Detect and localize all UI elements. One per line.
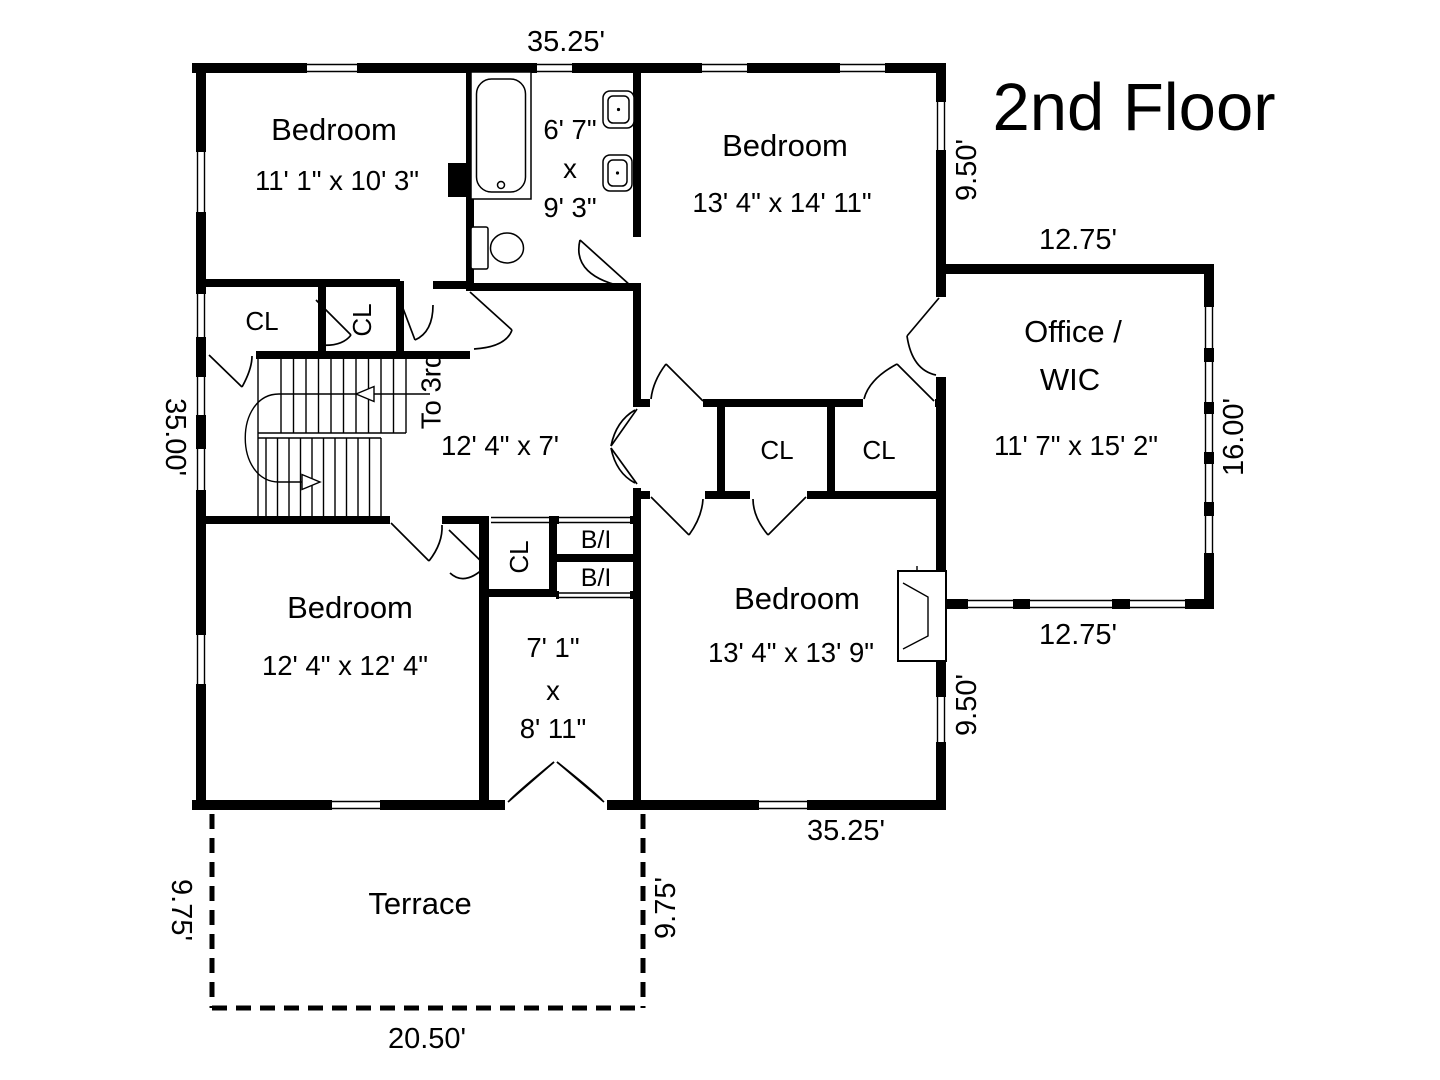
bathtub-icon bbox=[471, 72, 531, 199]
fireplace-icon bbox=[898, 566, 946, 661]
dim-bottom: 35.25' bbox=[807, 815, 885, 847]
page-title: 2nd Floor bbox=[992, 70, 1275, 145]
room-size-bedroom-top-right: 13' 4" x 14' 11" bbox=[692, 187, 871, 218]
closet-label-mid-b: CL bbox=[862, 435, 895, 465]
room-label-bedroom-bottom-right: Bedroom bbox=[734, 581, 860, 616]
dim-terrace-bottom: 20.50' bbox=[388, 1023, 466, 1055]
room-size-inner-hall-d: 8' 11" bbox=[520, 713, 587, 744]
room-label-bedroom-bottom-left: Bedroom bbox=[287, 590, 413, 625]
room-size-hall: 12' 4" x 7' bbox=[441, 430, 559, 461]
dim-right-upper: 9.50' bbox=[951, 139, 983, 201]
built-in-label-2: B/I bbox=[581, 564, 612, 592]
dim-left: 35.00' bbox=[159, 398, 191, 476]
closet-label-mid-a: CL bbox=[760, 435, 793, 465]
sink-icon-2 bbox=[603, 155, 632, 191]
room-size-bedroom-bottom-left: 12' 4" x 12' 4" bbox=[262, 650, 428, 681]
room-size-inner-hall-x: x bbox=[546, 675, 560, 706]
room-size-bathroom-d: 9' 3" bbox=[543, 192, 596, 223]
room-size-bathroom-x: x bbox=[563, 153, 577, 184]
dim-office-top: 12.75' bbox=[1039, 224, 1117, 256]
sink-icon bbox=[603, 91, 634, 128]
room-label-terrace: Terrace bbox=[368, 886, 471, 921]
room-label-bedroom-top-left: Bedroom bbox=[271, 112, 397, 147]
room-label-office-line1: Office / bbox=[1024, 314, 1122, 349]
dim-top: 35.25' bbox=[527, 26, 605, 58]
stairs-to-third-label: To 3rd bbox=[416, 353, 447, 429]
dim-office-bottom: 12.75' bbox=[1039, 619, 1117, 651]
background bbox=[0, 0, 1440, 1080]
dim-office-right: 16.00' bbox=[1218, 398, 1250, 476]
closet-label-lower: CL bbox=[504, 540, 534, 573]
dim-terrace-right: 9.75' bbox=[650, 877, 682, 939]
dim-right-lower: 9.50' bbox=[951, 674, 983, 736]
dim-terrace-left: 9.75' bbox=[165, 879, 197, 941]
closet-label-2: CL bbox=[347, 303, 377, 336]
room-size-bedroom-bottom-right: 13' 4" x 13' 9" bbox=[708, 637, 874, 668]
floor-plan: 2nd Floor 35.25' 35.25' 35.00' 9.50' 9.5… bbox=[0, 0, 1440, 1080]
room-size-bedroom-top-left: 11' 1" x 10' 3" bbox=[255, 165, 419, 196]
room-label-office-line2: WIC bbox=[1040, 362, 1100, 397]
room-size-office: 11' 7" x 15' 2" bbox=[994, 430, 1158, 461]
room-size-inner-hall-w: 7' 1" bbox=[526, 632, 579, 663]
closet-label-1: CL bbox=[245, 306, 278, 336]
room-size-bathroom-w: 6' 7" bbox=[543, 114, 596, 145]
room-label-bedroom-top-right: Bedroom bbox=[722, 128, 848, 163]
built-in-label-1: B/I bbox=[581, 526, 612, 554]
